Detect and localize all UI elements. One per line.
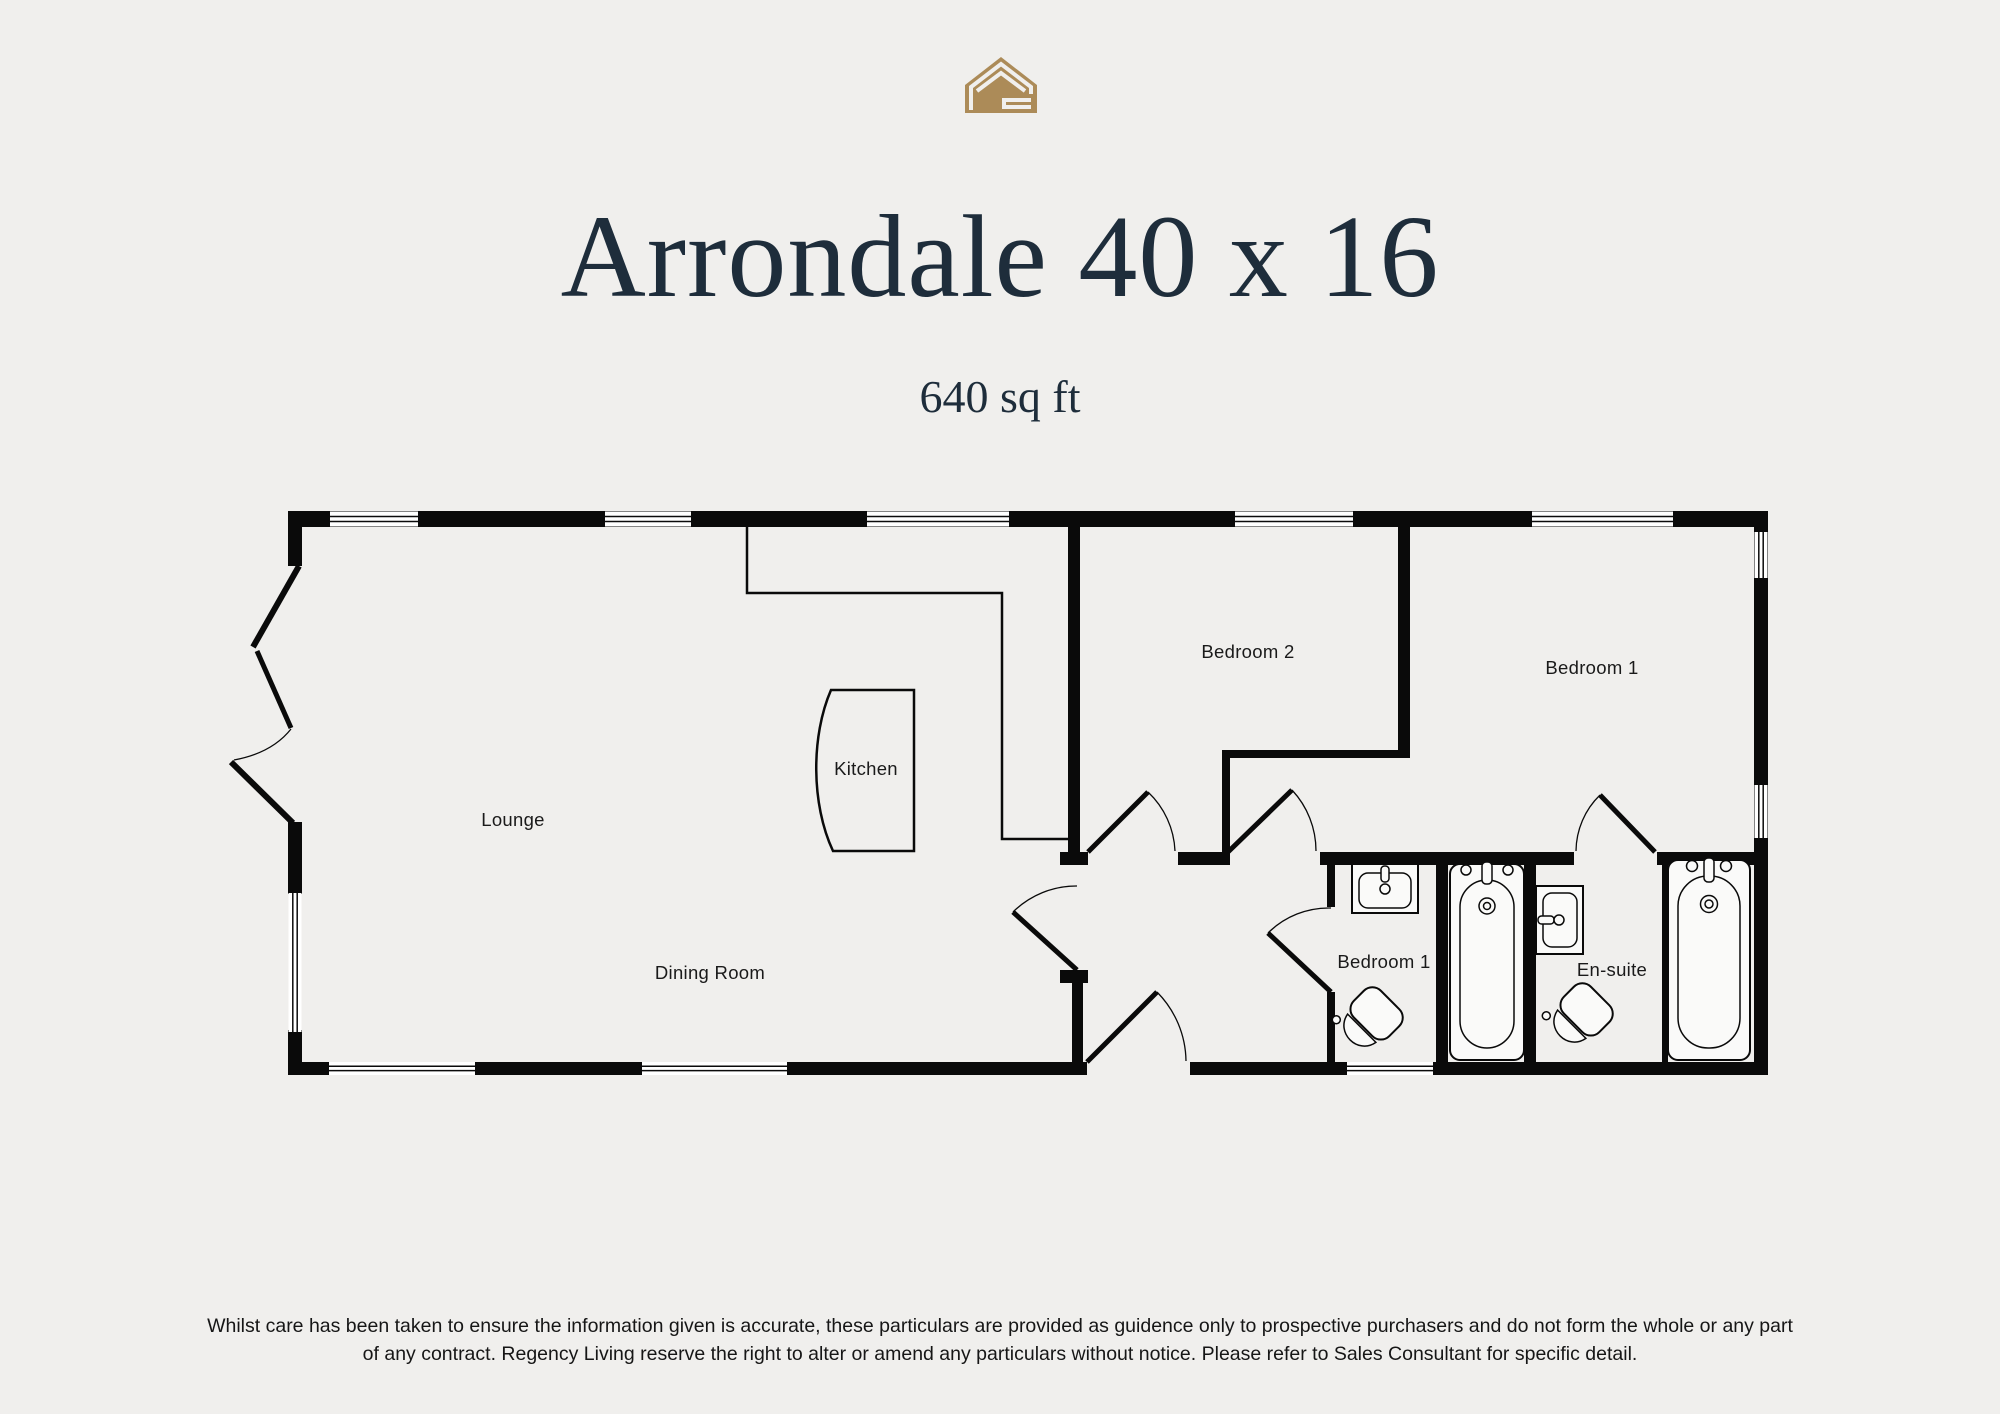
disclaimer-line-1: Whilst care has been taken to ensure the… [200, 1312, 1800, 1340]
room-label-dining: Dining Room [655, 962, 765, 984]
window [867, 512, 1009, 527]
bedroom2-step-wall-vertical [1222, 758, 1230, 852]
bathroom-ensuite-wall [1524, 865, 1536, 1062]
window [1532, 512, 1673, 527]
sink-icon [1536, 886, 1583, 954]
windows-side [289, 532, 1768, 1032]
bedroom2-bedroom1-wall [1398, 527, 1410, 757]
bathroom-left-wall [1327, 992, 1335, 1062]
bathtub-icon [1450, 862, 1524, 1060]
ensuite-door-leaf [1600, 795, 1655, 852]
bedroom2-door-arc [1148, 792, 1175, 851]
bathtub-icon [1668, 858, 1750, 1060]
bathroom-tub-wall [1436, 865, 1448, 1062]
ensuite-door-arc [1576, 795, 1600, 851]
floorplan-diagram: Lounge Dining Room Kitchen Bedroom 2 Bed… [0, 0, 2000, 1414]
room-label-lounge: Lounge [481, 809, 545, 831]
bay-door-leaf [257, 651, 291, 728]
room-label-bathroom: Bedroom 1 [1337, 951, 1430, 973]
window [1347, 1062, 1433, 1075]
left-wall-bottom [288, 1030, 302, 1065]
toilet-icon [1540, 976, 1617, 1053]
toilet-icon [1330, 980, 1407, 1057]
bay-patio-doors [231, 566, 299, 823]
window [1755, 532, 1768, 578]
front-door-arc [1157, 992, 1186, 1061]
front-door-opening [1087, 1061, 1190, 1076]
room-label-kitchen: Kitchen [834, 758, 898, 780]
window [1755, 785, 1768, 838]
window [642, 1062, 787, 1075]
bedroom2-door-leaf [1088, 792, 1148, 852]
bathroom-door-leaf [1268, 933, 1331, 992]
bay-wall-upper [253, 566, 299, 647]
window [330, 512, 418, 527]
floorplan-svg [0, 0, 2000, 1414]
kitchen-area [747, 527, 1068, 851]
left-wall-mid [288, 822, 302, 894]
wall-cap [1060, 852, 1088, 865]
lounge-bedroom2-wall [1068, 527, 1080, 852]
front-door-leaf [1087, 992, 1157, 1062]
hall-top-wall-segment [1178, 852, 1230, 865]
hall-left-wall [1072, 970, 1083, 1062]
bedroom1-door-leaf [1228, 790, 1292, 852]
bedroom1-door-arc [1292, 790, 1316, 851]
bottom-wall [288, 1062, 1768, 1075]
window [1235, 512, 1353, 527]
room-label-bedroom-2: Bedroom 2 [1201, 641, 1294, 663]
window [289, 893, 302, 1032]
disclaimer-line-2: of any contract. Regency Living reserve … [200, 1340, 1800, 1368]
room-label-bedroom-1: Bedroom 1 [1545, 657, 1638, 679]
sink-icon [1352, 864, 1418, 913]
bay-wall-lower [231, 762, 293, 823]
bathroom-left-wall-stub [1327, 865, 1335, 907]
bedroom2-step-wall [1222, 750, 1410, 758]
window [605, 512, 691, 527]
bathroom-door-arc [1268, 908, 1331, 933]
exterior-walls [288, 511, 1768, 1075]
disclaimer: Whilst care has been taken to ensure the… [200, 1312, 1800, 1368]
dining-door-arc [1013, 886, 1077, 912]
bay-door-swing-arc [234, 729, 291, 760]
left-wall-top [288, 511, 302, 566]
dining-door-leaf [1013, 912, 1077, 970]
floorplan-page: Arrondale 40 x 16 640 sq ft [0, 0, 2000, 1414]
interior-walls [1060, 527, 1754, 1062]
room-label-en-suite: En-suite [1577, 959, 1647, 981]
window [329, 1062, 475, 1075]
